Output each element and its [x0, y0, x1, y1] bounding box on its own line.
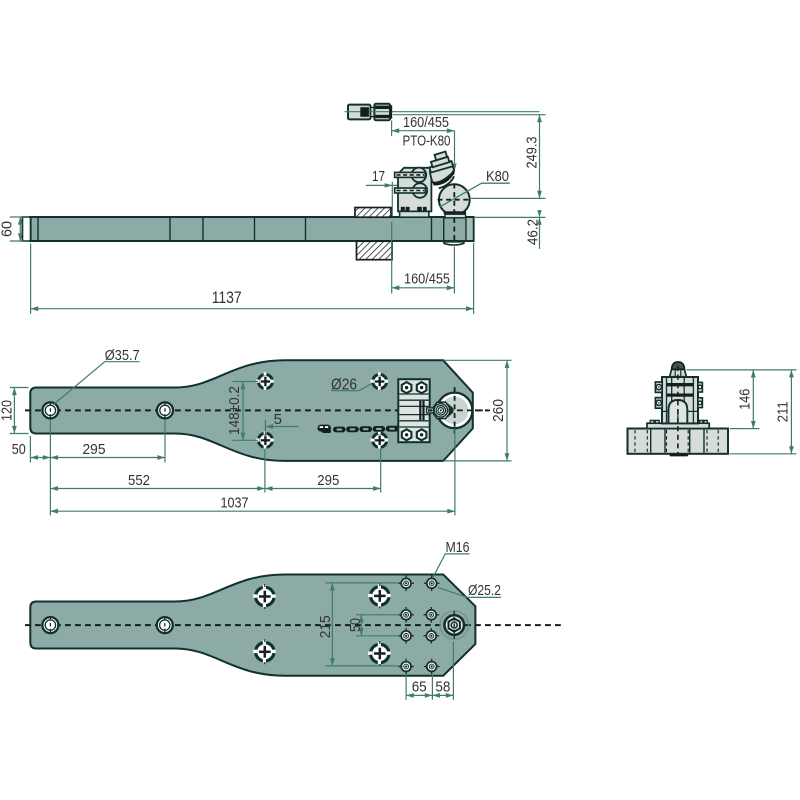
- svg-text:Ø25.2: Ø25.2: [468, 582, 501, 599]
- svg-text:215: 215: [317, 615, 334, 638]
- svg-text:1137: 1137: [212, 289, 242, 307]
- svg-text:M16: M16: [446, 539, 470, 556]
- svg-text:552: 552: [128, 472, 150, 489]
- svg-text:5: 5: [274, 411, 282, 428]
- svg-text:58: 58: [435, 679, 450, 696]
- svg-text:PTO-K80: PTO-K80: [403, 133, 451, 149]
- svg-text:65: 65: [412, 679, 427, 696]
- svg-text:249.3: 249.3: [524, 137, 541, 169]
- svg-text:K80: K80: [486, 168, 509, 185]
- svg-text:160/455: 160/455: [403, 115, 449, 131]
- svg-text:60: 60: [0, 221, 16, 237]
- svg-text:50: 50: [347, 618, 364, 632]
- svg-text:120: 120: [0, 400, 16, 421]
- svg-text:260: 260: [490, 399, 507, 422]
- svg-text:146: 146: [737, 389, 754, 410]
- svg-text:17: 17: [372, 168, 385, 185]
- svg-text:295: 295: [83, 441, 106, 458]
- svg-text:295: 295: [317, 472, 339, 489]
- svg-text:1037: 1037: [221, 495, 249, 512]
- svg-text:148±0.2: 148±0.2: [226, 386, 243, 435]
- svg-text:160/455: 160/455: [404, 272, 450, 288]
- svg-text:211: 211: [775, 401, 792, 422]
- svg-text:46.2: 46.2: [525, 219, 542, 245]
- svg-text:50: 50: [12, 441, 26, 458]
